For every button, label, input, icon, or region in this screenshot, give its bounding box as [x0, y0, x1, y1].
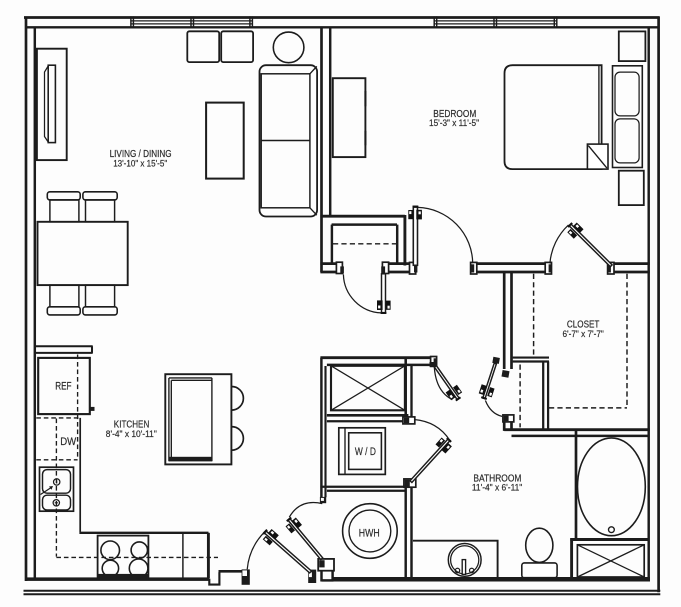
svg-text:8'-4" x 10'-11": 8'-4" x 10'-11" — [106, 429, 157, 439]
svg-text:11'-4" x 6'-11": 11'-4" x 6'-11" — [472, 483, 522, 493]
svg-text:HWH: HWH — [359, 527, 380, 539]
svg-text:13'-10" x 15'-5": 13'-10" x 15'-5" — [113, 159, 167, 169]
svg-text:REF: REF — [55, 380, 72, 392]
svg-text:15'-3" x 11'-5": 15'-3" x 11'-5" — [429, 118, 479, 128]
svg-text:W / D: W / D — [355, 446, 376, 458]
svg-text:DW: DW — [60, 436, 77, 448]
svg-text:6'-7" x 7'-7": 6'-7" x 7'-7" — [563, 329, 604, 339]
